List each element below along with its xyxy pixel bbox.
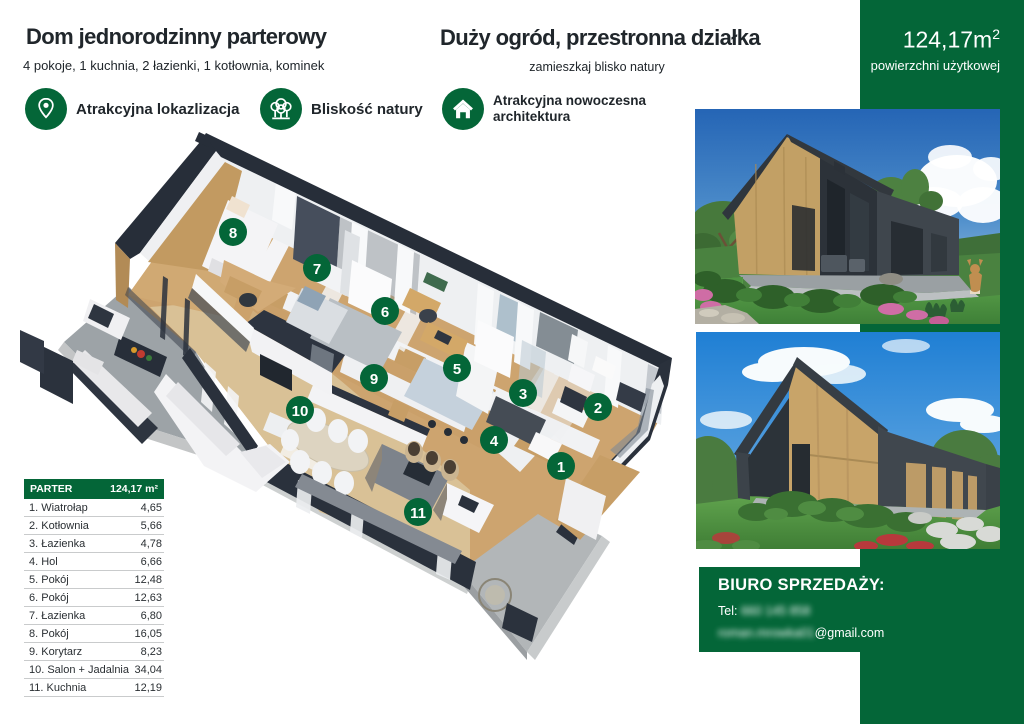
svg-text:11: 11 xyxy=(410,505,426,522)
svg-text:3: 3 xyxy=(519,386,527,403)
svg-text:4: 4 xyxy=(490,433,499,450)
svg-text:8: 8 xyxy=(229,225,237,242)
svg-text:6: 6 xyxy=(381,304,389,321)
svg-text:1: 1 xyxy=(557,459,565,476)
svg-text:2: 2 xyxy=(594,400,602,417)
svg-text:10: 10 xyxy=(292,403,309,420)
svg-text:5: 5 xyxy=(453,361,461,378)
svg-text:7: 7 xyxy=(313,261,321,278)
svg-text:9: 9 xyxy=(370,371,378,388)
